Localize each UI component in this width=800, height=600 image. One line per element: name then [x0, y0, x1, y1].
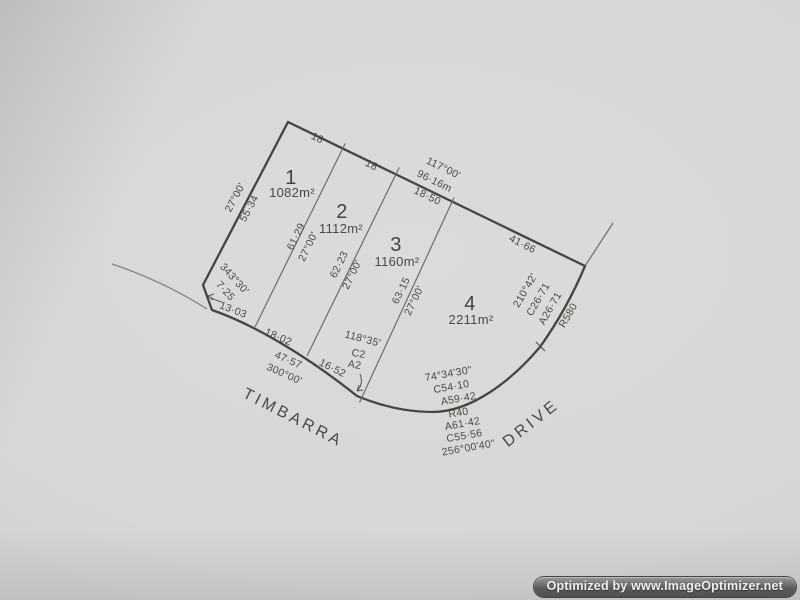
road-edge-right — [585, 223, 613, 266]
image-optimizer-watermark: Optimized by www.ImageOptimizer.net — [534, 577, 796, 597]
smallcurve-arc-label: A2 — [347, 358, 362, 372]
road-edge-left — [112, 264, 207, 309]
bottom-seg2-label: 18·02 — [263, 326, 294, 348]
lot1-area: 1082m² — [269, 185, 315, 200]
lot3-area: 1160m² — [375, 254, 420, 269]
scanned-survey-plan: { "survey": { "lots": [ {"number": "1", … — [0, 0, 800, 600]
smallcurve-bearing-label: 118°35' — [343, 329, 382, 350]
survey-plan-drawing: 1 1082m² 2 1112m² 3 1160m² 4 2211m² 18 1… — [0, 0, 800, 600]
street-name-timbarra: TIMBARRA — [240, 385, 346, 450]
lot3-number: 3 — [390, 234, 401, 256]
splay-arrow — [208, 294, 222, 302]
lot2-number: 2 — [336, 201, 347, 223]
small-curve-arrow — [357, 374, 363, 391]
street-name-drive: DRIVE — [500, 396, 563, 450]
lot4-area: 2211m² — [449, 312, 494, 327]
lot2-area: 1112m² — [319, 221, 363, 236]
